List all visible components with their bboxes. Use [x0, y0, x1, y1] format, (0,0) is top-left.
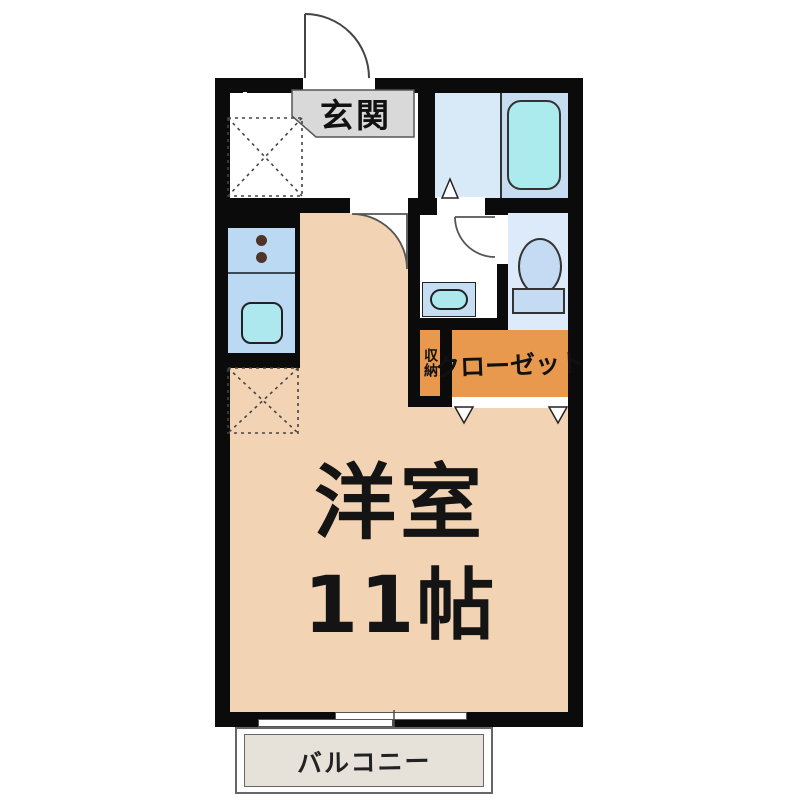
closet-door-strip	[452, 397, 568, 408]
kitchen-counter-divider	[228, 272, 295, 274]
washbasin	[430, 289, 468, 310]
main-room-size: 11帖	[240, 555, 560, 658]
toilet-tank-icon	[512, 288, 565, 314]
toilet-door-opening	[497, 215, 508, 264]
main-room-name: 洋室	[240, 452, 560, 555]
bathtub	[507, 100, 561, 190]
balcony: バルコニー	[244, 734, 484, 787]
main-room-label: 洋室 11帖	[240, 452, 560, 658]
closet-label: クローゼット	[434, 343, 585, 384]
entrance-door-arc	[305, 14, 369, 78]
genkan-label: 玄関	[300, 92, 412, 134]
balcony-label: バルコニー	[296, 741, 431, 779]
toilet-bowl-icon	[518, 238, 562, 295]
stove-burner-icon	[256, 252, 267, 263]
sliding-window-pane	[258, 719, 393, 727]
stove-burner-icon	[256, 235, 267, 246]
wall-joint-tick	[243, 92, 247, 106]
floor-plan: 収納 クローゼット バルコニー	[0, 0, 800, 800]
kitchen-sink	[241, 302, 283, 344]
bath-door-opening	[437, 197, 485, 216]
main-room-door-opening	[350, 198, 408, 214]
closet-box: クローゼット	[452, 330, 568, 397]
